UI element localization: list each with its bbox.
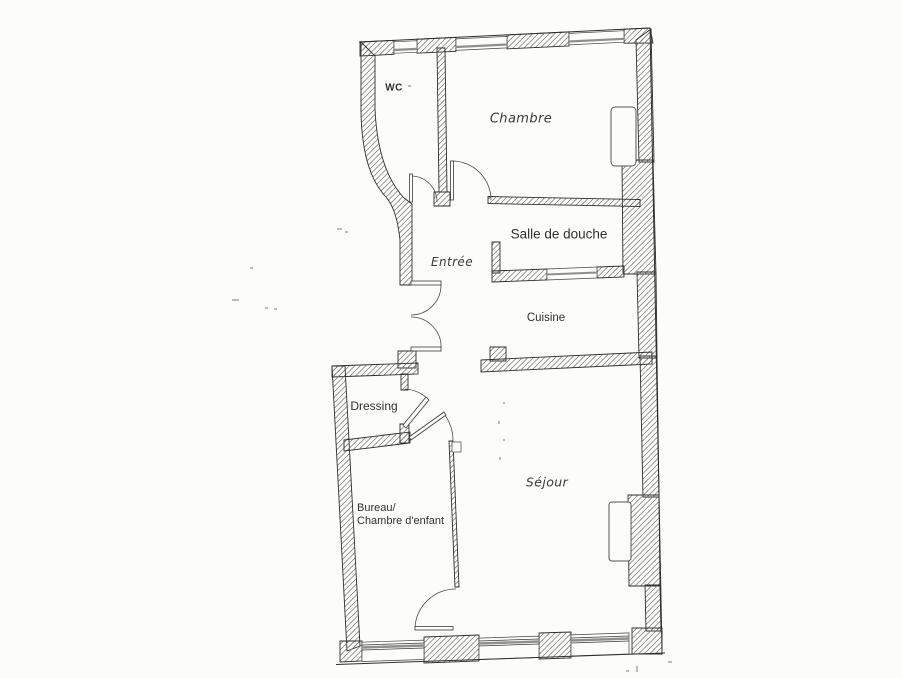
scanned-floor-plan-page: WC Chambre Salle de douche Entrée Cuisin… xyxy=(0,0,902,678)
room-label-bureau-line2: Chambre d'enfant xyxy=(357,515,444,528)
radiator-sejour xyxy=(609,502,631,561)
door-arc-dressing xyxy=(405,389,428,399)
wall-bottom-right-corner xyxy=(632,628,662,654)
wall-sdb-top-partition xyxy=(488,197,640,207)
door-arc-entry-top xyxy=(411,285,441,315)
wall-cuisine-bottom xyxy=(481,352,652,372)
fixtures xyxy=(452,107,636,561)
window-sejour-2 xyxy=(571,633,629,656)
wall-right-thick-chunk xyxy=(622,160,656,274)
wall-left-curved xyxy=(361,42,412,285)
window-sdb-duct xyxy=(547,267,597,280)
room-label-cuisine: Cuisine xyxy=(527,312,565,324)
room-label-dressing: Dressing xyxy=(350,399,397,413)
room-label-bureau: Bureau/ Chambre d'enfant xyxy=(357,502,444,528)
wall-bottom-left-corner xyxy=(340,641,362,662)
wall-sdb-bottom-right xyxy=(597,266,624,278)
window-wc xyxy=(394,41,417,54)
room-label-sejour: Séjour xyxy=(526,475,568,490)
doors xyxy=(403,161,491,630)
door-arc-chambre xyxy=(452,161,491,200)
window-sejour-1 xyxy=(479,636,539,659)
door-arc-wc xyxy=(411,176,437,202)
room-label-salle-de-douche: Salle de douche xyxy=(511,227,608,242)
door-leaf-entry-bottom xyxy=(411,347,441,351)
wall-right-pilaster xyxy=(628,495,660,586)
door-leaf-chambre xyxy=(451,161,454,200)
radiator-chambre xyxy=(611,107,636,166)
room-label-bureau-line1: Bureau/ xyxy=(357,502,444,515)
wall-right-sejour-upper xyxy=(640,356,659,497)
door-arcs xyxy=(405,161,491,627)
door-leaf-wc xyxy=(410,174,413,202)
door-arc-bureau xyxy=(444,414,453,441)
door-leaf-bureau-sejour xyxy=(415,627,453,631)
wall-right-sejour-lower xyxy=(645,585,661,631)
wall-right-cuisine xyxy=(637,272,657,358)
door-leaf-dressing xyxy=(403,397,429,428)
door-leaf-entry-top xyxy=(411,281,441,285)
wall-dressing-door-jamb xyxy=(401,374,408,390)
window-chambre-2 xyxy=(569,31,624,45)
wall-top-mid-pier xyxy=(417,37,456,53)
wall-divider-end-block xyxy=(434,192,450,206)
wall-bottom-pier-2 xyxy=(539,632,571,659)
window-bureau xyxy=(362,640,424,661)
floor-plan-drawing xyxy=(0,0,902,678)
wall-bottom-pier-1 xyxy=(424,635,479,663)
door-arc-bureau-sejour xyxy=(415,589,456,627)
wall-partition-bureau-sejour xyxy=(449,441,459,587)
wall-divider-wc-chambre xyxy=(437,48,447,192)
window-chambre-1 xyxy=(456,36,507,50)
room-label-wc: WC xyxy=(385,83,402,94)
room-label-entree: Entrée xyxy=(431,255,473,269)
wall-sdb-left-stub xyxy=(492,242,500,273)
wall-sdb-bottom-left xyxy=(492,269,547,282)
partition-top-hook xyxy=(452,442,461,452)
room-label-chambre: Chambre xyxy=(490,112,552,127)
door-arc-entry-bottom xyxy=(411,317,441,349)
